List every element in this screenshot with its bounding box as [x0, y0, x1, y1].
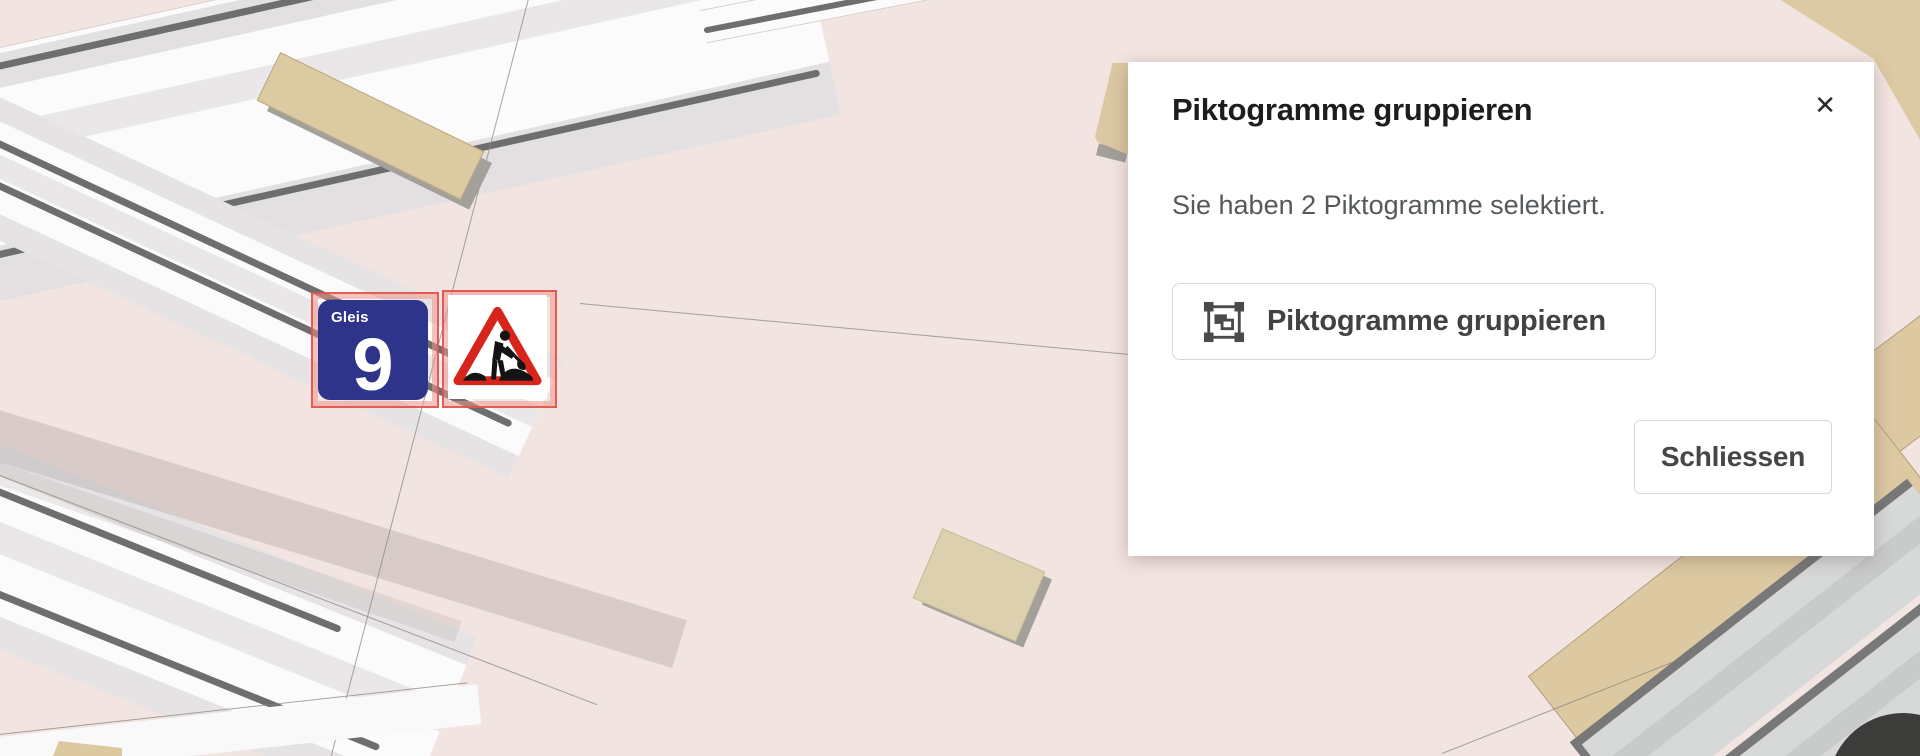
group-pictograms-button[interactable]: Piktogramme gruppieren: [1172, 283, 1656, 360]
map-canvas[interactable]: Gleis 9 Piktogramme gruppieren ✕ Sie hab…: [0, 0, 1920, 756]
group-pictograms-dialog: Piktogramme gruppieren ✕ Sie haben 2 Pik…: [1128, 62, 1874, 556]
group-button-label: Piktogramme gruppieren: [1267, 305, 1606, 338]
group-objects-icon: [1203, 301, 1245, 343]
rail-line: [703, 0, 989, 34]
pictogram-track-sign[interactable]: Gleis 9: [318, 300, 428, 400]
track-sign-number: 9: [318, 328, 428, 402]
selection-message: Sie haben 2 Piktogramme selektiert.: [1172, 190, 1606, 221]
dialog-title: Piktogramme gruppieren: [1172, 92, 1532, 128]
construction-warning-icon: [448, 295, 547, 399]
pictogram-construction-sign[interactable]: [448, 295, 547, 399]
schliessen-button[interactable]: Schliessen: [1634, 420, 1832, 494]
close-icon[interactable]: ✕: [1814, 90, 1836, 121]
building: [1095, 63, 1129, 155]
